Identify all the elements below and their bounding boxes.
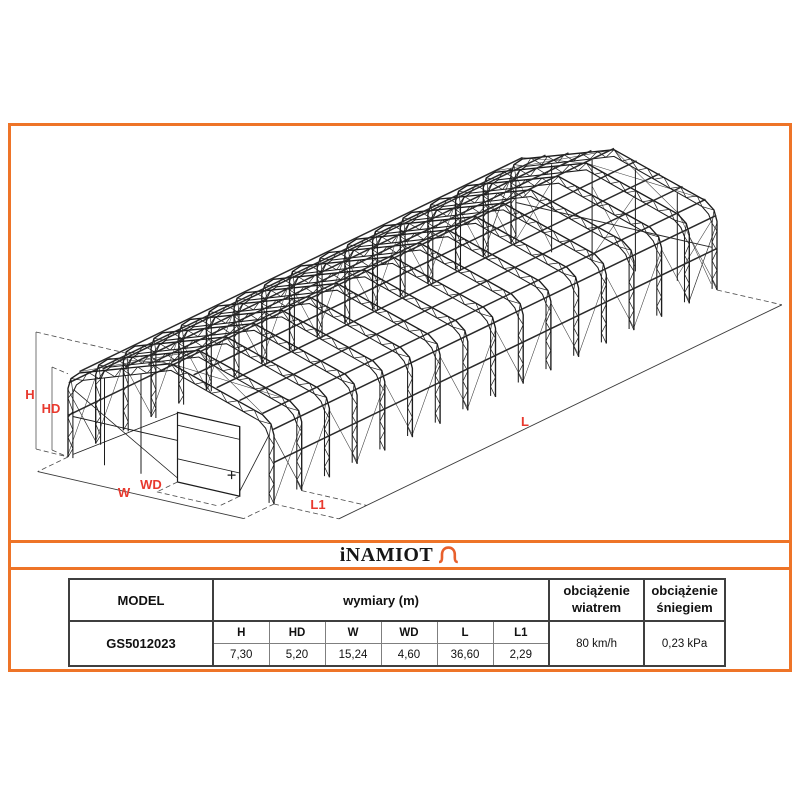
wind-load-value: 80 km/h	[549, 621, 644, 666]
dimensions-header: wymiary (m)	[213, 579, 549, 621]
tent-arch-icon	[437, 545, 460, 565]
dim-col-l1: L1	[493, 621, 549, 644]
dim-col-l: L	[437, 621, 493, 644]
drawing-area: H HD W WD L1 L	[11, 126, 789, 540]
dim-value-l: 36,60	[437, 644, 493, 667]
dim-label-l1: L1	[310, 497, 325, 512]
dim-label-w: W	[118, 485, 131, 500]
document-border-frame: H HD W WD L1 L iNAMIOT MODEL wymiary (	[8, 123, 792, 672]
dim-value-hd: 5,20	[269, 644, 325, 667]
hangar-structure-drawing: H HD W WD L1 L	[11, 126, 789, 540]
dim-col-wd: WD	[381, 621, 437, 644]
dim-col-w: W	[325, 621, 381, 644]
spec-sheet-page: { "drawing": { "dimension_labels": { "h"…	[0, 0, 800, 800]
snow-load-value: 0,23 kPa	[644, 621, 725, 666]
dim-col-h: H	[213, 621, 269, 644]
dim-label-hd: HD	[42, 401, 61, 416]
dim-value-wd: 4,60	[381, 644, 437, 667]
model-value: GS5012023	[69, 621, 213, 666]
dim-label-h: H	[25, 387, 34, 402]
dim-value-h: 7,30	[213, 644, 269, 667]
brand-name: iNAMIOT	[340, 545, 434, 565]
logo-band: iNAMIOT	[11, 540, 789, 570]
wind-load-header: obciążenie wiatrem	[549, 579, 644, 621]
dim-value-l1: 2,29	[493, 644, 549, 667]
dim-label-wd: WD	[140, 477, 162, 492]
dim-value-w: 15,24	[325, 644, 381, 667]
dim-label-l: L	[521, 414, 529, 429]
model-header: MODEL	[69, 579, 213, 621]
table-zone: MODEL wymiary (m) obciążenie wiatrem obc…	[11, 570, 789, 669]
spec-table: MODEL wymiary (m) obciążenie wiatrem obc…	[68, 578, 726, 667]
dim-col-hd: HD	[269, 621, 325, 644]
snow-load-header: obciążenie śniegiem	[644, 579, 725, 621]
